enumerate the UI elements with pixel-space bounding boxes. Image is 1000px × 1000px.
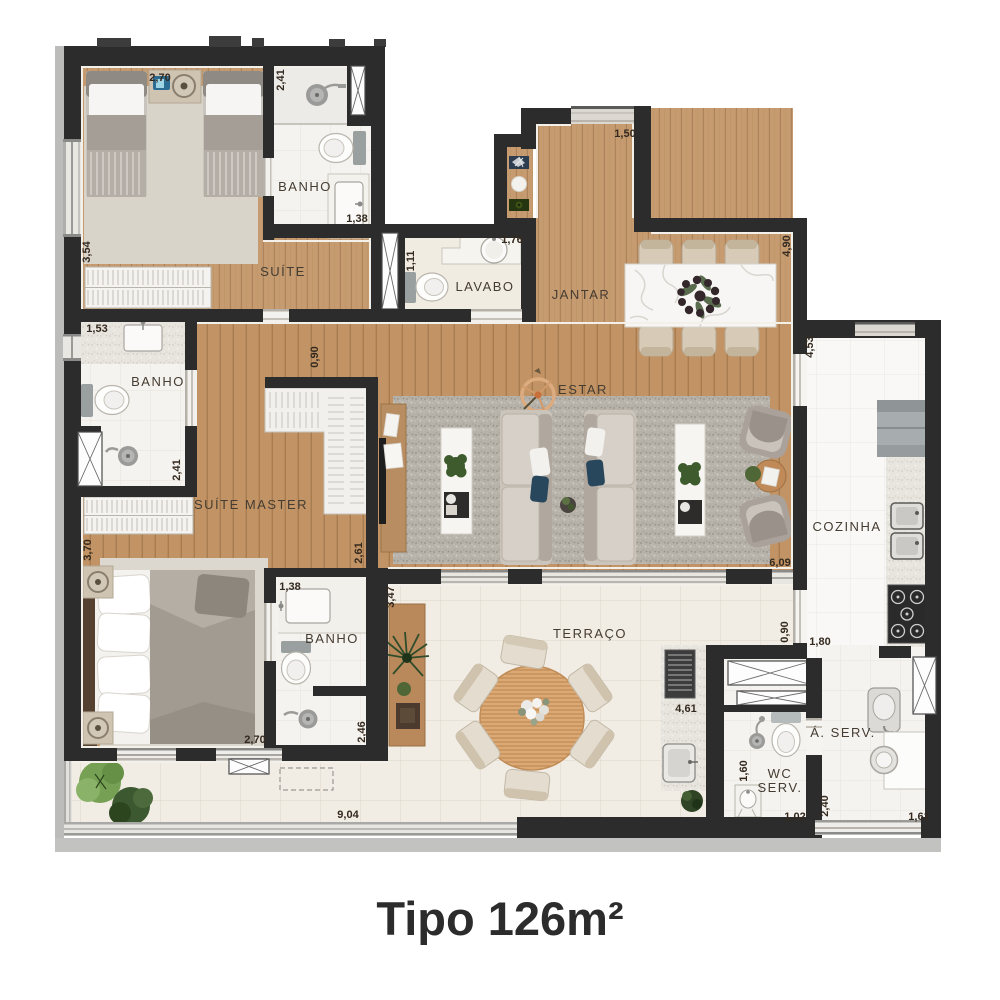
svg-text:1,11: 1,11 (405, 251, 417, 272)
svg-text:1,02: 1,02 (784, 811, 805, 823)
svg-text:0,90: 0,90 (779, 621, 791, 642)
svg-text:JANTAR: JANTAR (552, 287, 611, 302)
svg-text:SUÍTE: SUÍTE (260, 264, 306, 279)
svg-text:1,60: 1,60 (738, 760, 750, 781)
svg-text:6,09: 6,09 (769, 557, 790, 569)
svg-text:4,61: 4,61 (675, 703, 696, 715)
svg-text:2,41: 2,41 (275, 69, 287, 90)
svg-text:2,61: 2,61 (353, 542, 365, 563)
svg-text:2,70: 2,70 (149, 72, 170, 84)
svg-text:1,61: 1,61 (908, 811, 929, 823)
svg-text:2,41: 2,41 (171, 459, 183, 480)
svg-text:COZINHA: COZINHA (813, 519, 882, 534)
svg-text:2,46: 2,46 (356, 721, 368, 742)
svg-text:BANHO: BANHO (278, 179, 332, 194)
svg-text:BANHO: BANHO (305, 631, 359, 646)
svg-text:3,54: 3,54 (81, 240, 93, 262)
svg-text:2,40: 2,40 (819, 795, 831, 816)
svg-text:1,38: 1,38 (279, 581, 300, 593)
svg-text:Tipo 126m²: Tipo 126m² (376, 892, 623, 945)
svg-text:Á. SERV.: Á. SERV. (810, 725, 875, 740)
svg-text:1,80: 1,80 (809, 636, 830, 648)
svg-text:2,70: 2,70 (244, 734, 265, 746)
svg-text:1,38: 1,38 (346, 213, 367, 225)
svg-text:1,76: 1,76 (501, 234, 522, 246)
svg-text:4,90: 4,90 (781, 235, 793, 256)
svg-text:ESTAR: ESTAR (558, 382, 608, 397)
svg-text:0,90: 0,90 (309, 346, 321, 367)
svg-text:9,04: 9,04 (337, 809, 359, 821)
svg-text:3,70: 3,70 (82, 539, 94, 560)
svg-text:WC: WC (768, 766, 793, 781)
svg-text:SERV.: SERV. (757, 780, 802, 795)
svg-text:TERRAÇO: TERRAÇO (553, 626, 627, 641)
svg-text:3,47: 3,47 (385, 586, 397, 607)
svg-text:4,53: 4,53 (804, 336, 816, 357)
svg-text:SUÍTE MASTER: SUÍTE MASTER (194, 497, 308, 512)
svg-text:1,50: 1,50 (614, 128, 635, 140)
svg-text:LAVABO: LAVABO (455, 279, 514, 294)
svg-text:BANHO: BANHO (131, 374, 185, 389)
svg-text:1,53: 1,53 (86, 323, 107, 335)
